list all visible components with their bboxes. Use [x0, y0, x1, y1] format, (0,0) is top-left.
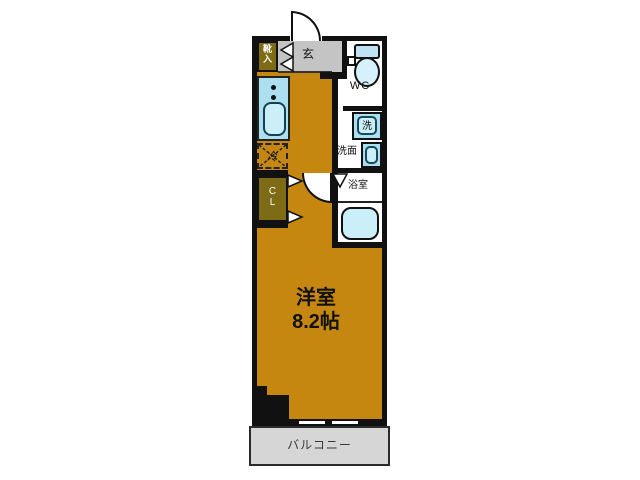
washing-machine: 洗: [352, 112, 382, 140]
washstand: [361, 142, 382, 168]
wall-top-right: [322, 36, 387, 41]
entrance-label: 玄: [296, 48, 320, 61]
washer-label: 洗: [359, 121, 375, 132]
burner-dot-1: [271, 85, 276, 90]
refrigerator-label: 冷: [259, 151, 286, 163]
closet-label: C L: [259, 186, 286, 208]
washstand-basin-icon: [365, 146, 378, 164]
wall-bottom-right: [358, 419, 387, 426]
room-size: 8.2帖: [256, 310, 376, 334]
balcony: バルコニー: [249, 426, 390, 466]
wall-right: [382, 36, 387, 426]
room-label: 洋室 8.2帖: [256, 286, 376, 334]
pillar-step-lower: [252, 395, 289, 424]
toilet-label: WC: [344, 80, 376, 92]
bathroom-divider-line: [338, 201, 382, 203]
kitchen-sink-icon: [263, 102, 286, 136]
washroom-label: 洗面: [334, 146, 360, 157]
wall-washroom-bath: [332, 168, 387, 173]
shoe-cabinet: 靴 入: [257, 41, 278, 72]
wall-closet-bottom: [252, 222, 288, 228]
wall-top-left: [252, 36, 290, 41]
bathtub-icon: [341, 207, 379, 240]
wall-bath-bottom: [332, 242, 387, 248]
wall-hall-washroom: [332, 72, 338, 242]
wall-wc-bottom: [343, 106, 387, 111]
burner-dot-2: [271, 95, 276, 100]
entrance-door-arc: [291, 11, 321, 41]
shoe-cabinet-label: 靴 入: [259, 45, 276, 65]
bathroom-label: 浴室: [342, 180, 374, 191]
room-name: 洋室: [256, 286, 376, 310]
washing-machine-drum-icon: 洗: [357, 116, 377, 135]
floor-plan: 玄 靴 入 WC 冷 C L 洗 洗面: [0, 0, 640, 480]
kitchen-counter: [257, 76, 290, 141]
balcony-label: バルコニー: [251, 439, 388, 452]
closet: C L: [257, 176, 288, 222]
refrigerator-space: 冷: [257, 143, 288, 169]
